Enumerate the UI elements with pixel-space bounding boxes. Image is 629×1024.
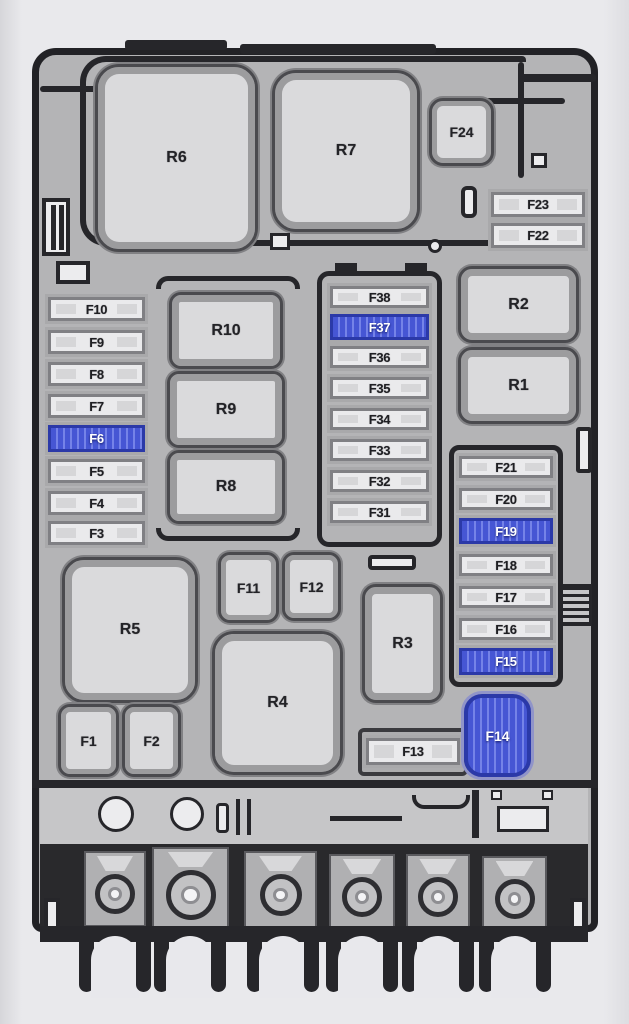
fuse-f18: F18 xyxy=(459,554,553,576)
fuse-f1: F1 xyxy=(58,704,119,777)
fuse-f37: F37 xyxy=(330,314,429,340)
vertical-slot xyxy=(368,555,416,570)
strip-notch xyxy=(412,795,470,809)
fuse-f13: F13 xyxy=(366,738,460,765)
mount-hole-1 xyxy=(98,796,134,832)
bolt-center xyxy=(355,890,369,904)
mounting-leg-5 xyxy=(402,930,474,998)
mounting-leg-3 xyxy=(247,930,319,998)
leg-prong xyxy=(536,930,551,992)
fuse-f38: F38 xyxy=(330,286,429,308)
fuse-f36: F36 xyxy=(330,346,429,368)
relay-bracket-bottom xyxy=(156,528,300,541)
housing-opening xyxy=(56,261,90,284)
strip-divider xyxy=(32,780,598,788)
strip-window xyxy=(497,806,549,832)
terminal-3 xyxy=(244,851,317,928)
housing-tab xyxy=(125,40,227,50)
fuse-f7: F7 xyxy=(48,394,145,418)
fuse-f31: F31 xyxy=(330,501,429,523)
leg-arch xyxy=(91,936,139,998)
fuse-f14: F14 xyxy=(464,694,531,777)
fuse-box-diagram: R6 R7 F24 F23 F22 R2 R1 F10 F9 F8 F7 F6 … xyxy=(0,0,629,1024)
strip-rib xyxy=(236,799,240,835)
strip-rib xyxy=(247,799,251,835)
bolt-center xyxy=(508,892,522,906)
vent-grille xyxy=(560,584,592,626)
housing-opening xyxy=(531,153,547,168)
fuse-f34: F34 xyxy=(330,408,429,430)
relay-r6: R6 xyxy=(95,64,258,252)
strip-rib xyxy=(472,790,479,838)
leg-arch xyxy=(491,936,539,998)
relay-r7: R7 xyxy=(272,70,420,232)
leg-arch xyxy=(259,936,307,998)
leg-arch xyxy=(166,936,214,998)
strip-line xyxy=(330,816,402,821)
bolt-center xyxy=(273,888,288,903)
bolt-terminal xyxy=(260,874,302,916)
leg-prong xyxy=(304,930,319,992)
fuse-f32: F32 xyxy=(330,470,429,492)
leg-arch xyxy=(414,936,462,998)
terminal-clamp xyxy=(496,861,534,876)
fuse-f4: F4 xyxy=(48,491,145,515)
housing-tab xyxy=(520,74,596,82)
terminal-clamp xyxy=(259,856,302,871)
leg-prong xyxy=(136,930,151,992)
bolt-center xyxy=(431,890,445,904)
terminal-1 xyxy=(84,851,146,927)
connector-slot-pin xyxy=(51,205,56,250)
mounting-leg-1 xyxy=(79,930,151,998)
fuse-f11: F11 xyxy=(218,552,279,623)
top-relay-group-outline-right xyxy=(518,62,524,178)
terminal-5 xyxy=(406,854,470,932)
fuse-f17: F17 xyxy=(459,586,553,608)
strip-slot xyxy=(216,803,229,833)
fuse-f16: F16 xyxy=(459,618,553,640)
relay-r4: R4 xyxy=(212,631,343,775)
mounting-leg-4 xyxy=(326,930,398,998)
leg-prong xyxy=(383,930,398,992)
terminal-4 xyxy=(329,854,395,930)
relay-r8: R8 xyxy=(167,450,285,524)
leg-arch xyxy=(338,936,386,998)
relay-r3: R3 xyxy=(362,584,443,703)
fuse-f15: F15 xyxy=(459,648,553,675)
terminal-clamp xyxy=(343,859,381,874)
bolt-terminal xyxy=(418,877,458,917)
mounting-leg-2 xyxy=(154,930,226,998)
fuse-f22: F22 xyxy=(491,223,585,248)
relay-r1: R1 xyxy=(458,347,579,424)
relay-r2: R2 xyxy=(458,266,579,343)
fuse-f3: F3 xyxy=(48,521,145,545)
fuse-f2: F2 xyxy=(122,704,181,777)
relay-bracket-top xyxy=(156,276,300,289)
relay-r5: R5 xyxy=(62,557,198,703)
fuse-f20: F20 xyxy=(459,488,553,510)
bolt-terminal xyxy=(95,874,135,914)
strip-pip xyxy=(491,790,502,800)
relay-r10: R10 xyxy=(169,292,283,369)
fuse-f21: F21 xyxy=(459,456,553,478)
connector-slot xyxy=(42,198,70,256)
bolt-center xyxy=(108,887,122,901)
fuse-f35: F35 xyxy=(330,377,429,399)
fuse-f24: F24 xyxy=(429,98,494,166)
fuse-f12: F12 xyxy=(282,552,341,621)
terminal-6 xyxy=(482,856,547,931)
housing-tab xyxy=(240,44,436,54)
vertical-slot xyxy=(461,186,477,218)
housing-notch xyxy=(576,427,592,473)
fuse-f33: F33 xyxy=(330,439,429,461)
mounting-leg-6 xyxy=(479,930,551,998)
terminal-clamp xyxy=(97,856,133,871)
housing-opening xyxy=(270,233,290,250)
terminal-clamp xyxy=(419,859,456,874)
bolt-center xyxy=(181,886,199,904)
connector-slot-pin xyxy=(59,205,64,250)
strip-pip xyxy=(542,790,553,800)
round-hole xyxy=(428,239,442,253)
mount-hole-2 xyxy=(170,797,204,831)
leg-prong xyxy=(459,930,474,992)
fuse-f19: F19 xyxy=(459,518,553,544)
relay-r9: R9 xyxy=(167,371,285,448)
fuse-f23: F23 xyxy=(491,192,585,217)
fuse-f8: F8 xyxy=(48,362,145,386)
bolt-terminal xyxy=(166,870,216,920)
leg-prong xyxy=(211,930,226,992)
bolt-terminal xyxy=(342,877,382,917)
fuse-f10: F10 xyxy=(48,297,145,321)
bolt-terminal xyxy=(495,879,535,919)
terminal-2 xyxy=(152,847,229,931)
fuse-f5: F5 xyxy=(48,459,145,483)
fuse-f9: F9 xyxy=(48,330,145,354)
fuse-f6: F6 xyxy=(48,425,145,452)
terminal-clamp xyxy=(168,852,213,867)
